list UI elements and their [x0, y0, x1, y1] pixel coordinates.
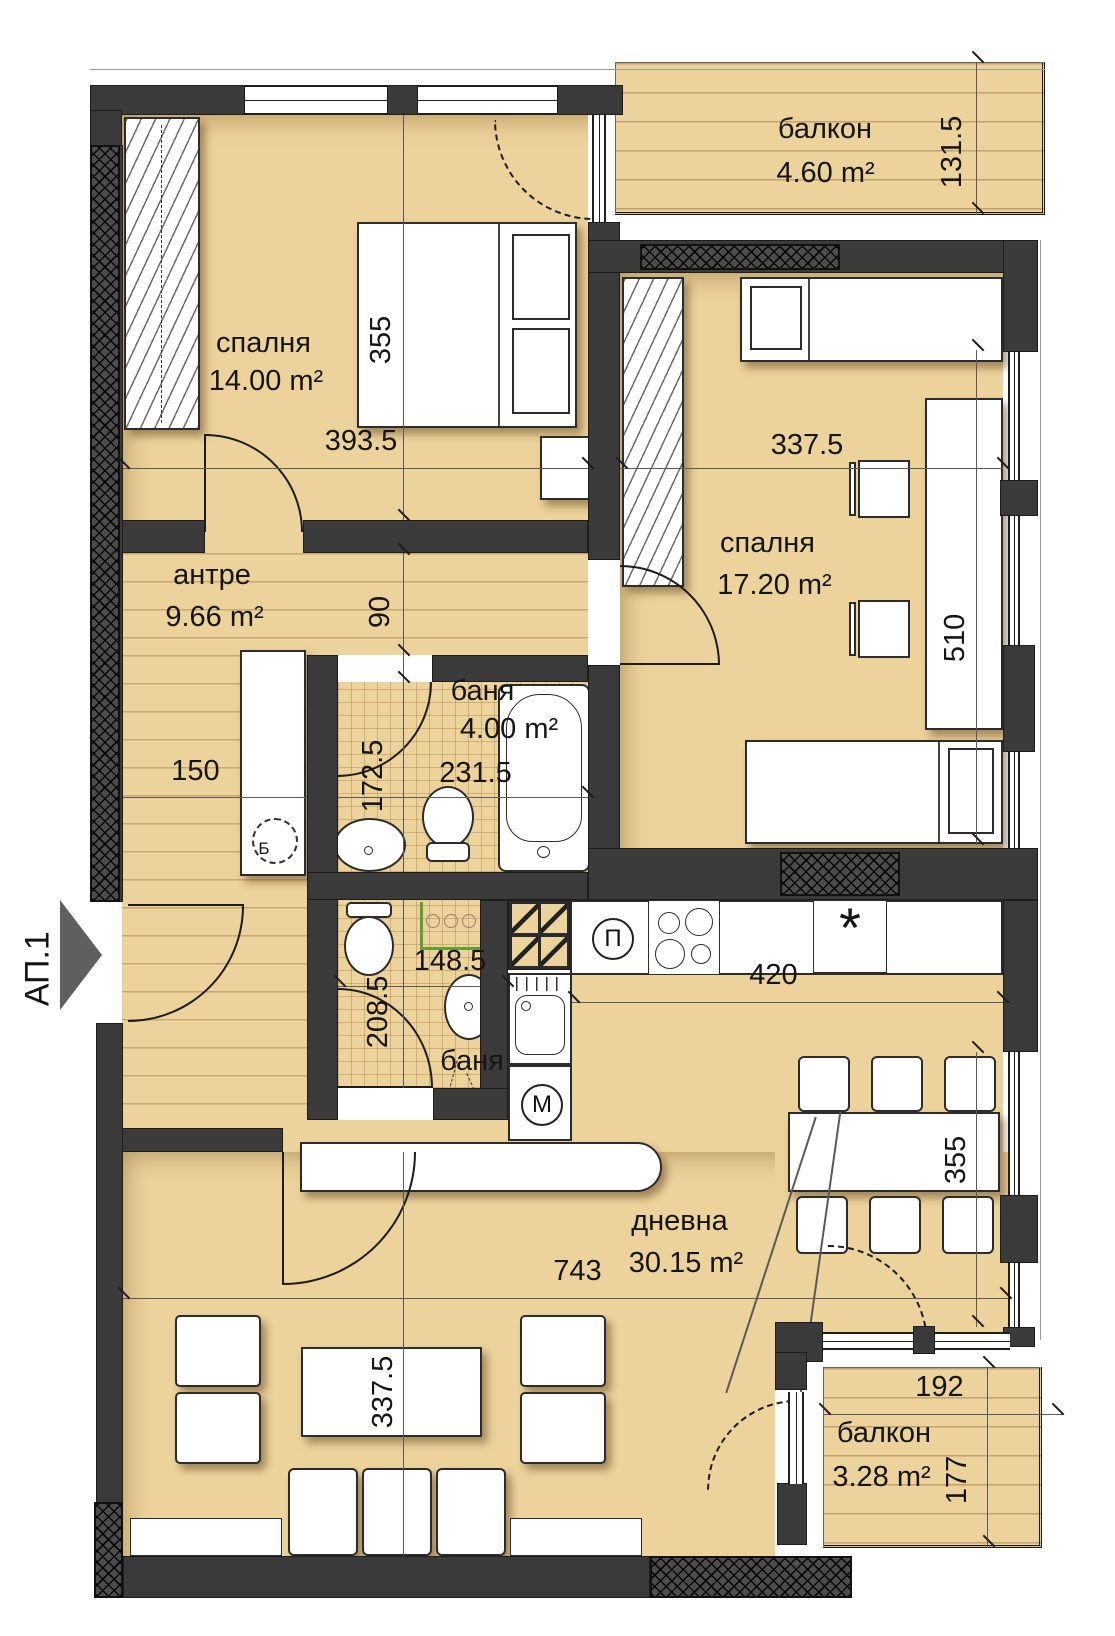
bath2-south-wall: [433, 1088, 508, 1120]
balcony-bottom-pillar: [777, 1483, 807, 1545]
bedroom2-name: спалня: [700, 528, 835, 560]
dimension-line: [403, 115, 404, 520]
dim-bedroom2-depth: 510: [940, 588, 972, 688]
fridge-letter: П: [604, 925, 621, 953]
wall-bottom-insulation: [650, 1556, 852, 1598]
washing-machine-icon: М: [521, 1084, 563, 1126]
radiator: [510, 1518, 642, 1556]
dim-living-table: 337.5: [368, 1342, 400, 1442]
wall-left-upper: [90, 110, 122, 150]
dim-balcony-bottom-width: 192: [902, 1372, 977, 1404]
sofa-seat: [288, 1468, 358, 1556]
vent-shaft-cell: [541, 937, 567, 966]
dimension-line: [823, 1414, 1063, 1415]
dining-chair: [944, 1056, 996, 1112]
bedroom1-south-wall-left: [122, 520, 205, 553]
dim-bath2-width: 148.5: [390, 946, 510, 978]
dimension-line: [122, 468, 588, 469]
bed-blanket-line: [498, 224, 500, 426]
balcony-bottom-name: балкон: [820, 1418, 948, 1450]
east-wall-kitchen: [1003, 900, 1038, 1052]
vent-shaft-cell: [512, 937, 538, 966]
dimension-line: [987, 1367, 988, 1548]
dim-bath1-depth: 172.5: [358, 726, 390, 826]
bedroom1-area: 14.00 m²: [186, 366, 346, 398]
desk-chair-back: [849, 602, 856, 656]
bed-pillow: [512, 328, 570, 414]
floor-plan: Б П * М АП.1 спалня 14.00 m² спалня 17.2…: [0, 0, 1115, 1636]
east-wall-mid: [1003, 645, 1035, 752]
sofa-seat: [362, 1468, 432, 1556]
desk-chair-back: [849, 462, 856, 516]
wall-top-pillar: [387, 85, 418, 115]
entrance-arrow-icon: [60, 900, 102, 1010]
dining-window-1: [1008, 1052, 1020, 1195]
balcony-top-name: балкон: [765, 114, 885, 146]
hall-name: антре: [152, 560, 272, 592]
bath2-east-wall: [480, 900, 508, 1120]
desk-chair: [858, 600, 910, 658]
dining-chair: [869, 1196, 921, 1254]
dimension-line: [403, 1152, 404, 1556]
sink-tap-dot: [521, 1001, 531, 1011]
hall-living-wall: [122, 1128, 283, 1152]
bath1-toilet-tank: [426, 842, 470, 862]
shower-jet: [444, 914, 458, 928]
vent-shaft-cell: [541, 904, 567, 933]
bath1-toilet-bowl: [422, 786, 474, 848]
boiler-label: Б: [254, 840, 274, 859]
bedroom1-south-wall-right: [303, 520, 588, 553]
dim-kitchen-width: 420: [726, 960, 821, 992]
shower-jet: [462, 914, 476, 928]
living-name: дневна: [612, 1206, 747, 1238]
dim-dining: 355: [941, 1110, 973, 1210]
living-balcony-french-door: [788, 1392, 804, 1484]
dim-bedroom1-bed: 355: [366, 290, 398, 390]
bedroom1-window-right: [418, 85, 557, 115]
bath-middle-wall: [307, 872, 588, 900]
wall-left-below-entrance: [96, 1023, 123, 1505]
dim-corridor: 90: [365, 562, 397, 662]
east-wall-top: [1003, 240, 1038, 352]
outer-facade-line-right: [1040, 240, 1041, 1340]
bedroom1-balcony-door: [592, 115, 606, 222]
balcony-bottom-area: 3.28 m²: [814, 1462, 949, 1494]
dim-balcony-top-depth: 131.5: [937, 102, 969, 202]
bedroom1-window-left: [245, 85, 387, 115]
dim-living-width: 743: [530, 1256, 625, 1288]
east-pillar-2: [1000, 1195, 1038, 1263]
dimension-line: [976, 62, 977, 215]
wardrobe-centerline: [161, 125, 162, 423]
bath1-name: баня: [430, 676, 535, 708]
dim-bedroom1-width: 393.5: [306, 426, 416, 458]
bedroom2-north-insulation: [640, 244, 840, 270]
dimension-line: [96, 797, 588, 798]
dimension-line: [620, 468, 1003, 469]
wall-top-corner: [557, 85, 623, 115]
dim-balcony-bottom-depth: 177: [942, 1430, 974, 1530]
living-area: 30.15 m²: [606, 1248, 766, 1280]
bed-divider-line: [938, 742, 940, 842]
balcony-bottom-corner-wall-b: [775, 1352, 807, 1390]
washer-letter: М: [532, 1091, 552, 1119]
armchair: [175, 1392, 261, 1464]
dim-bedroom2-width: 337.5: [752, 430, 862, 462]
bed-pillow: [948, 748, 994, 834]
bedroom1-name: спалня: [196, 328, 331, 360]
dimension-line: [976, 1052, 977, 1327]
bath1-area: 4.00 m²: [424, 714, 594, 746]
sink-drain-dot: [364, 846, 373, 855]
bath2-name: баня: [418, 1046, 526, 1078]
dimension-line: [976, 350, 977, 845]
bath1-sink: [334, 818, 406, 872]
stove-burner: [691, 944, 711, 964]
living-balcony-door-pillar: [913, 1326, 935, 1354]
bedroom2-window-3: [1008, 752, 1020, 848]
bed-divider-line: [808, 279, 810, 360]
balcony-top-area: 4.60 m²: [758, 158, 893, 190]
dimension-line: [572, 1002, 1003, 1003]
armchair: [520, 1315, 606, 1387]
bedroom2-south-insulation: [780, 852, 900, 896]
vent-shaft-cell: [512, 904, 538, 933]
stove-burner: [685, 908, 713, 936]
sink-drainer: [516, 977, 564, 991]
stove-burner: [658, 912, 680, 934]
bedroom2-area: 17.20 m²: [692, 570, 857, 602]
dining-chair: [798, 1056, 850, 1112]
fridge-icon: П: [592, 918, 634, 960]
armchair: [520, 1392, 606, 1464]
sink-drain-dot: [464, 1002, 473, 1011]
dim-hall-width: 150: [148, 756, 243, 788]
bed-pillow: [512, 234, 570, 320]
hall-area: 9.66 m²: [142, 602, 287, 634]
radiator: [130, 1518, 282, 1556]
armchair: [175, 1315, 261, 1387]
bathtub-drain: [537, 846, 550, 858]
dimension-line: [403, 553, 404, 1088]
stove-burner: [655, 939, 685, 969]
bedroom2-window-2: [1008, 516, 1020, 645]
bedroom2-window-1: [1008, 352, 1020, 480]
shower-jet: [426, 914, 440, 928]
entrance-label: АП.1: [19, 909, 56, 1029]
wall-bottom: [123, 1556, 650, 1598]
bed-pillow: [750, 286, 802, 350]
wall-left-bottom-insulation: [94, 1502, 123, 1598]
sofa-seat: [436, 1468, 506, 1556]
dining-chair: [871, 1056, 923, 1112]
bedroom2-wardrobe: [622, 277, 684, 587]
dimension-line: [122, 1298, 1008, 1299]
outer-dimension-line-top: [90, 69, 1045, 70]
dim-bath1-width: 231.5: [408, 758, 543, 790]
appliance-symbol: *: [828, 900, 872, 956]
east-pillar-1: [1000, 480, 1038, 516]
dim-bath2-depth: 208.5: [363, 962, 395, 1062]
